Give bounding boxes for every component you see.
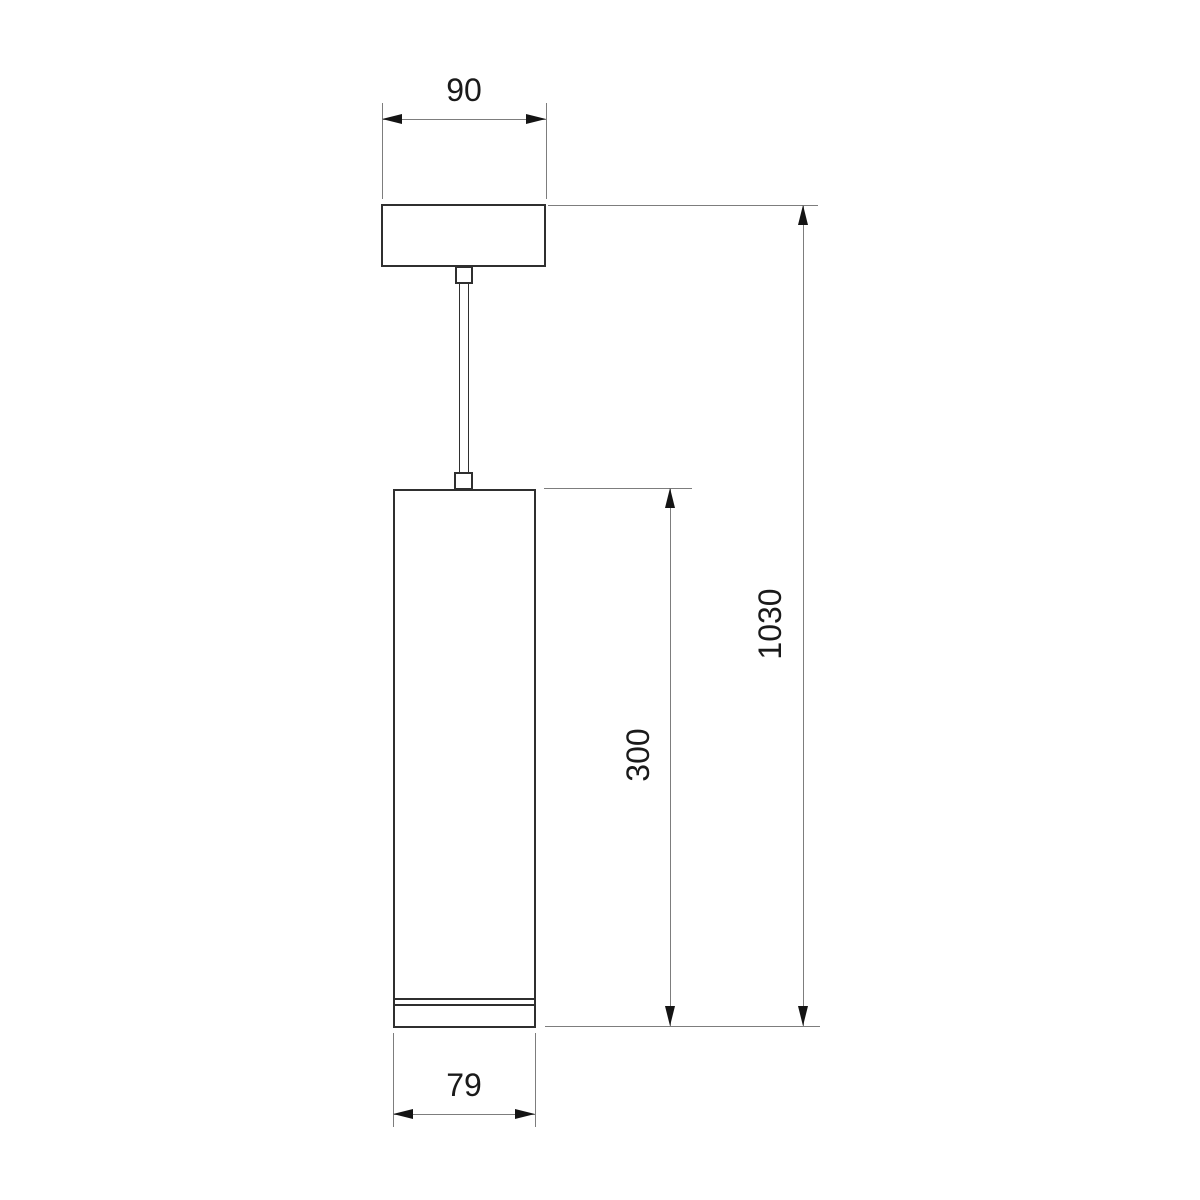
lamp-body xyxy=(393,489,536,1028)
ext-line-body-right xyxy=(535,1033,536,1127)
lamp-body-seam-upper xyxy=(395,998,534,1000)
ext-line-overall-top xyxy=(548,205,818,206)
dim-label-body-height: 300 xyxy=(620,695,656,815)
cable-connector xyxy=(454,472,473,490)
dim-line-canopy-width xyxy=(382,119,546,120)
dim-line-overall-height xyxy=(803,205,804,1026)
arrowhead-right-icon xyxy=(526,114,546,124)
dimension-drawing: 90 79 300 1030 xyxy=(0,0,1200,1200)
dim-label-overall-height: 1030 xyxy=(752,564,788,684)
lamp-body-seam-lower xyxy=(395,1004,534,1006)
arrowhead-down-icon xyxy=(665,1006,675,1026)
cable-nipple xyxy=(455,266,473,284)
dim-line-body-width xyxy=(393,1114,535,1115)
ceiling-canopy xyxy=(381,204,546,267)
suspension-cable xyxy=(459,282,469,474)
ext-line-overall-bottom xyxy=(545,1026,820,1027)
arrowhead-down-icon xyxy=(798,1006,808,1026)
dim-label-canopy-width: 90 xyxy=(414,72,514,108)
ext-line-canopy-right xyxy=(546,103,547,199)
dim-line-body-height xyxy=(670,488,671,1026)
arrowhead-up-icon xyxy=(798,205,808,225)
arrowhead-up-icon xyxy=(665,488,675,508)
dim-label-body-width: 79 xyxy=(414,1067,514,1103)
arrowhead-left-icon xyxy=(393,1109,413,1119)
arrowhead-right-icon xyxy=(515,1109,535,1119)
arrowhead-left-icon xyxy=(382,114,402,124)
